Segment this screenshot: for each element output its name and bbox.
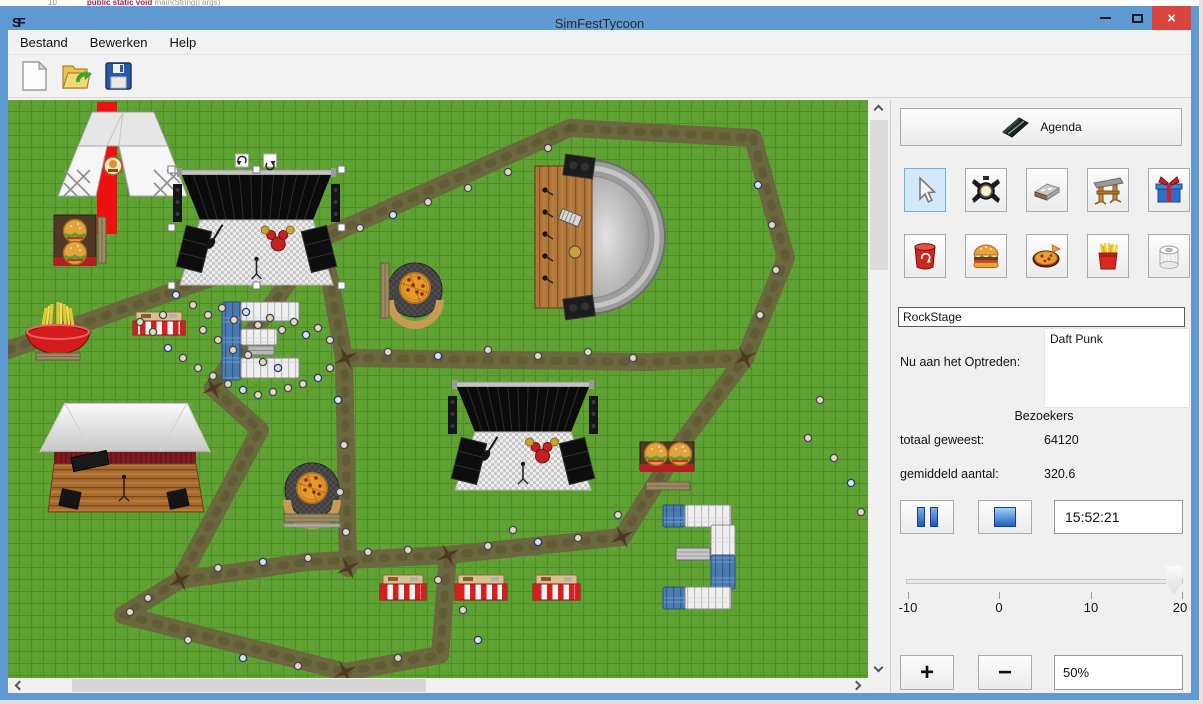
- agenda-button[interactable]: Agenda: [900, 108, 1182, 146]
- total-visitors-label: totaal geweest:: [900, 433, 984, 447]
- visitor-dot: [259, 358, 266, 365]
- visitor-dot: [424, 198, 431, 205]
- visitor-dot: [334, 396, 341, 403]
- visitor-dot: [299, 380, 306, 387]
- visitor-dot: [290, 318, 297, 325]
- zoom-in-button[interactable]: +: [900, 655, 954, 690]
- visitor-dot: [474, 636, 481, 643]
- toilet-paper-icon: [1153, 241, 1185, 271]
- map-horizontal-scrollbar[interactable]: [8, 678, 868, 693]
- average-visitors-value: 320.6: [1044, 467, 1075, 481]
- visitor-dot: [209, 372, 216, 379]
- visitor-dot: [768, 221, 775, 228]
- minimize-icon: [1100, 17, 1111, 19]
- visitor-dot: [204, 311, 211, 318]
- visitor-dot: [356, 224, 363, 231]
- visitor-dot: [266, 314, 273, 321]
- slider-label-ten: 10: [1074, 600, 1108, 615]
- tool-path[interactable]: [1026, 168, 1068, 212]
- total-visitors-value: 64120: [1044, 433, 1079, 447]
- background-window-edge-bottom: [0, 700, 1203, 704]
- visitor-dot: [302, 331, 309, 338]
- visitor-dot: [199, 326, 206, 333]
- visitor-dot: [816, 396, 823, 403]
- scrollbar-corner: [868, 678, 890, 693]
- visitor-dot: [126, 608, 133, 615]
- scroll-right-button[interactable]: [850, 678, 868, 693]
- visitor-dot: [629, 354, 636, 361]
- visitor-dot: [544, 144, 551, 151]
- slider-tick: [999, 592, 1000, 599]
- chevron-down-icon: [874, 663, 884, 673]
- chevron-left-icon: [15, 681, 25, 691]
- visitor-dot: [229, 346, 236, 353]
- visitor-dot: [244, 351, 251, 358]
- visitor-dot: [830, 454, 837, 461]
- visitor-dot: [342, 528, 349, 535]
- background-window-edge-right: [1199, 0, 1203, 704]
- visitor-dot: [404, 546, 411, 553]
- visitor-dot: [304, 554, 311, 561]
- visitor-dot: [224, 380, 231, 387]
- visitor-dot: [144, 594, 151, 601]
- visitors-header: Bezoekers: [971, 409, 1117, 423]
- visitor-dot: [159, 311, 166, 318]
- visitor-dot: [504, 168, 511, 175]
- visitor-dot: [314, 324, 321, 331]
- average-visitors-label: gemiddeld aantal:: [900, 467, 999, 481]
- visitor-dot: [434, 576, 441, 583]
- visitor-dot: [184, 636, 191, 643]
- visitor-dot: [614, 511, 621, 518]
- menu-bestand[interactable]: Bestand: [20, 35, 68, 50]
- save-file-icon: [103, 60, 133, 92]
- visitor-dot: [336, 488, 343, 495]
- window-title: SimFestTycoon: [0, 16, 1199, 31]
- new-file-icon: [19, 60, 49, 92]
- visitor-dot: [269, 388, 276, 395]
- visitor-dot: [179, 354, 186, 361]
- open-file-icon: [60, 60, 92, 92]
- visitor-dot: [534, 538, 541, 545]
- visitor-dot: [384, 348, 391, 355]
- tool-fries[interactable]: [1087, 234, 1129, 278]
- visitor-dot: [314, 374, 321, 381]
- visitor-dot: [464, 184, 471, 191]
- visitor-dot: [326, 336, 333, 343]
- festival-map[interactable]: [8, 100, 868, 678]
- menu-help[interactable]: Help: [170, 35, 197, 50]
- slider-label-zero: 0: [982, 600, 1016, 615]
- speed-slider-thumb[interactable]: [1166, 566, 1182, 594]
- visitor-dot: [278, 326, 285, 333]
- pause-icon: [917, 507, 925, 527]
- window-frame-bottom: [0, 693, 1199, 700]
- visitor-dot: [239, 654, 246, 661]
- visitor-dot: [254, 321, 261, 328]
- window-frame-left: [0, 30, 8, 700]
- festival-map-canvas[interactable]: [8, 100, 868, 678]
- pizza-stand: [284, 463, 340, 527]
- visitor-dot: [284, 384, 291, 391]
- visitor-dot: [274, 364, 281, 371]
- tool-stage[interactable]: [1087, 168, 1129, 212]
- visitor-dot: [434, 352, 441, 359]
- agenda-label: Agenda: [1040, 120, 1081, 134]
- tool-select[interactable]: [904, 168, 946, 212]
- speed-slider-track[interactable]: [906, 579, 1183, 584]
- slider-label-max: 20: [1163, 600, 1197, 615]
- visitor-dot: [459, 606, 466, 613]
- close-button[interactable]: ×: [1152, 6, 1191, 30]
- horizontal-scroll-thumb[interactable]: [72, 679, 426, 692]
- visitor-dot: [294, 662, 301, 669]
- cursor-icon: [910, 175, 940, 205]
- visitor-dot: [254, 391, 261, 398]
- zoom-out-button[interactable]: −: [978, 655, 1032, 690]
- chevron-up-icon: [874, 105, 884, 115]
- visitor-dot: [574, 534, 581, 541]
- close-icon: ×: [1167, 10, 1176, 27]
- visitor-dot: [756, 311, 763, 318]
- trash-can-icon: [910, 241, 940, 271]
- visitor-dot: [584, 348, 591, 355]
- visitor-dot: [218, 304, 225, 311]
- performer-box: Daft Punk: [1044, 328, 1190, 408]
- visitor-dot: [847, 479, 854, 486]
- menu-bewerken[interactable]: Bewerken: [90, 35, 148, 50]
- tool-burger[interactable]: [965, 234, 1007, 278]
- scroll-down-button[interactable]: [868, 662, 890, 678]
- burger-stand: [640, 442, 694, 490]
- vertical-scroll-thumb[interactable]: [870, 120, 888, 270]
- slider-tick: [908, 592, 909, 599]
- zoom-level-field[interactable]: 50%: [1054, 655, 1183, 690]
- new-file-button[interactable]: [16, 58, 52, 94]
- visitor-dot: [214, 564, 221, 571]
- visitor-dot: [214, 336, 221, 343]
- visitor-dot: [326, 364, 333, 371]
- visitor-dot: [172, 291, 179, 298]
- path-tile-icon: [1031, 175, 1063, 205]
- tool-gift[interactable]: [1148, 168, 1190, 212]
- maximize-button[interactable]: [1122, 6, 1152, 30]
- scroll-left-button[interactable]: [8, 678, 26, 693]
- now-performing-label: Nu aan het Optreden:: [900, 355, 1020, 369]
- visitor-dot: [230, 316, 237, 323]
- scroll-up-button[interactable]: [868, 100, 890, 116]
- visitor-dot: [259, 558, 266, 565]
- stop-icon: [994, 507, 1016, 527]
- visitor-dot: [857, 508, 864, 515]
- game-clock: 15:52:21: [1054, 500, 1183, 534]
- barn-stage: [40, 403, 210, 512]
- visitor-dot: [194, 364, 201, 371]
- pizza-icon: [1031, 241, 1063, 271]
- open-file-button[interactable]: [58, 58, 94, 94]
- burger-icon: [970, 241, 1002, 271]
- striped-stand: [380, 575, 426, 600]
- visitor-dot: [364, 548, 371, 555]
- burger-stand: [54, 215, 106, 266]
- tool-pizza[interactable]: [1026, 234, 1068, 278]
- visitor-dot: [239, 386, 246, 393]
- tool-spotlight[interactable]: [965, 168, 1007, 212]
- visitor-dot: [389, 211, 396, 218]
- pause-button[interactable]: [900, 500, 954, 534]
- visitor-dot: [484, 542, 491, 549]
- maximize-icon: [1132, 14, 1143, 23]
- visitor-dot: [242, 308, 249, 315]
- visitor-dot: [804, 434, 811, 441]
- tool-toilet[interactable]: [1148, 234, 1190, 278]
- visitor-dot: [164, 344, 171, 351]
- minimize-button[interactable]: [1090, 6, 1120, 30]
- slider-tick: [1091, 592, 1092, 599]
- stage-gate-icon: [1092, 175, 1124, 205]
- gift-icon: [1153, 175, 1185, 205]
- slider-tick: [1182, 592, 1183, 599]
- visitor-dot: [136, 318, 143, 325]
- map-vertical-scrollbar[interactable]: [868, 100, 890, 678]
- spotlight-icon: [971, 175, 1001, 205]
- fries-icon: [1092, 241, 1124, 271]
- visitor-dot: [394, 654, 401, 661]
- slider-label-min: -10: [891, 600, 925, 615]
- striped-stand: [533, 575, 580, 600]
- agenda-icon: [1000, 115, 1030, 139]
- title-bar[interactable]: SF SimFestTycoon: [0, 6, 1199, 30]
- visitor-dot: [772, 266, 779, 273]
- visitor-dot: [754, 181, 761, 188]
- control-panel: Agenda: [890, 100, 1191, 693]
- visitor-dot: [149, 328, 156, 335]
- tool-trash[interactable]: [904, 234, 946, 278]
- menu-bar: Bestand Bewerken Help: [8, 30, 1191, 55]
- save-file-button[interactable]: [100, 58, 136, 94]
- striped-stand: [455, 575, 507, 600]
- visitor-dot: [484, 346, 491, 353]
- stop-button[interactable]: [978, 500, 1032, 534]
- visitor-dot: [509, 526, 516, 533]
- visitor-dot: [189, 301, 196, 308]
- toolbar: [8, 55, 1191, 98]
- visitor-dot: [340, 441, 347, 448]
- stage-name-input[interactable]: RockStage: [898, 307, 1185, 327]
- visitor-dot: [534, 352, 541, 359]
- chevron-right-icon: [852, 681, 862, 691]
